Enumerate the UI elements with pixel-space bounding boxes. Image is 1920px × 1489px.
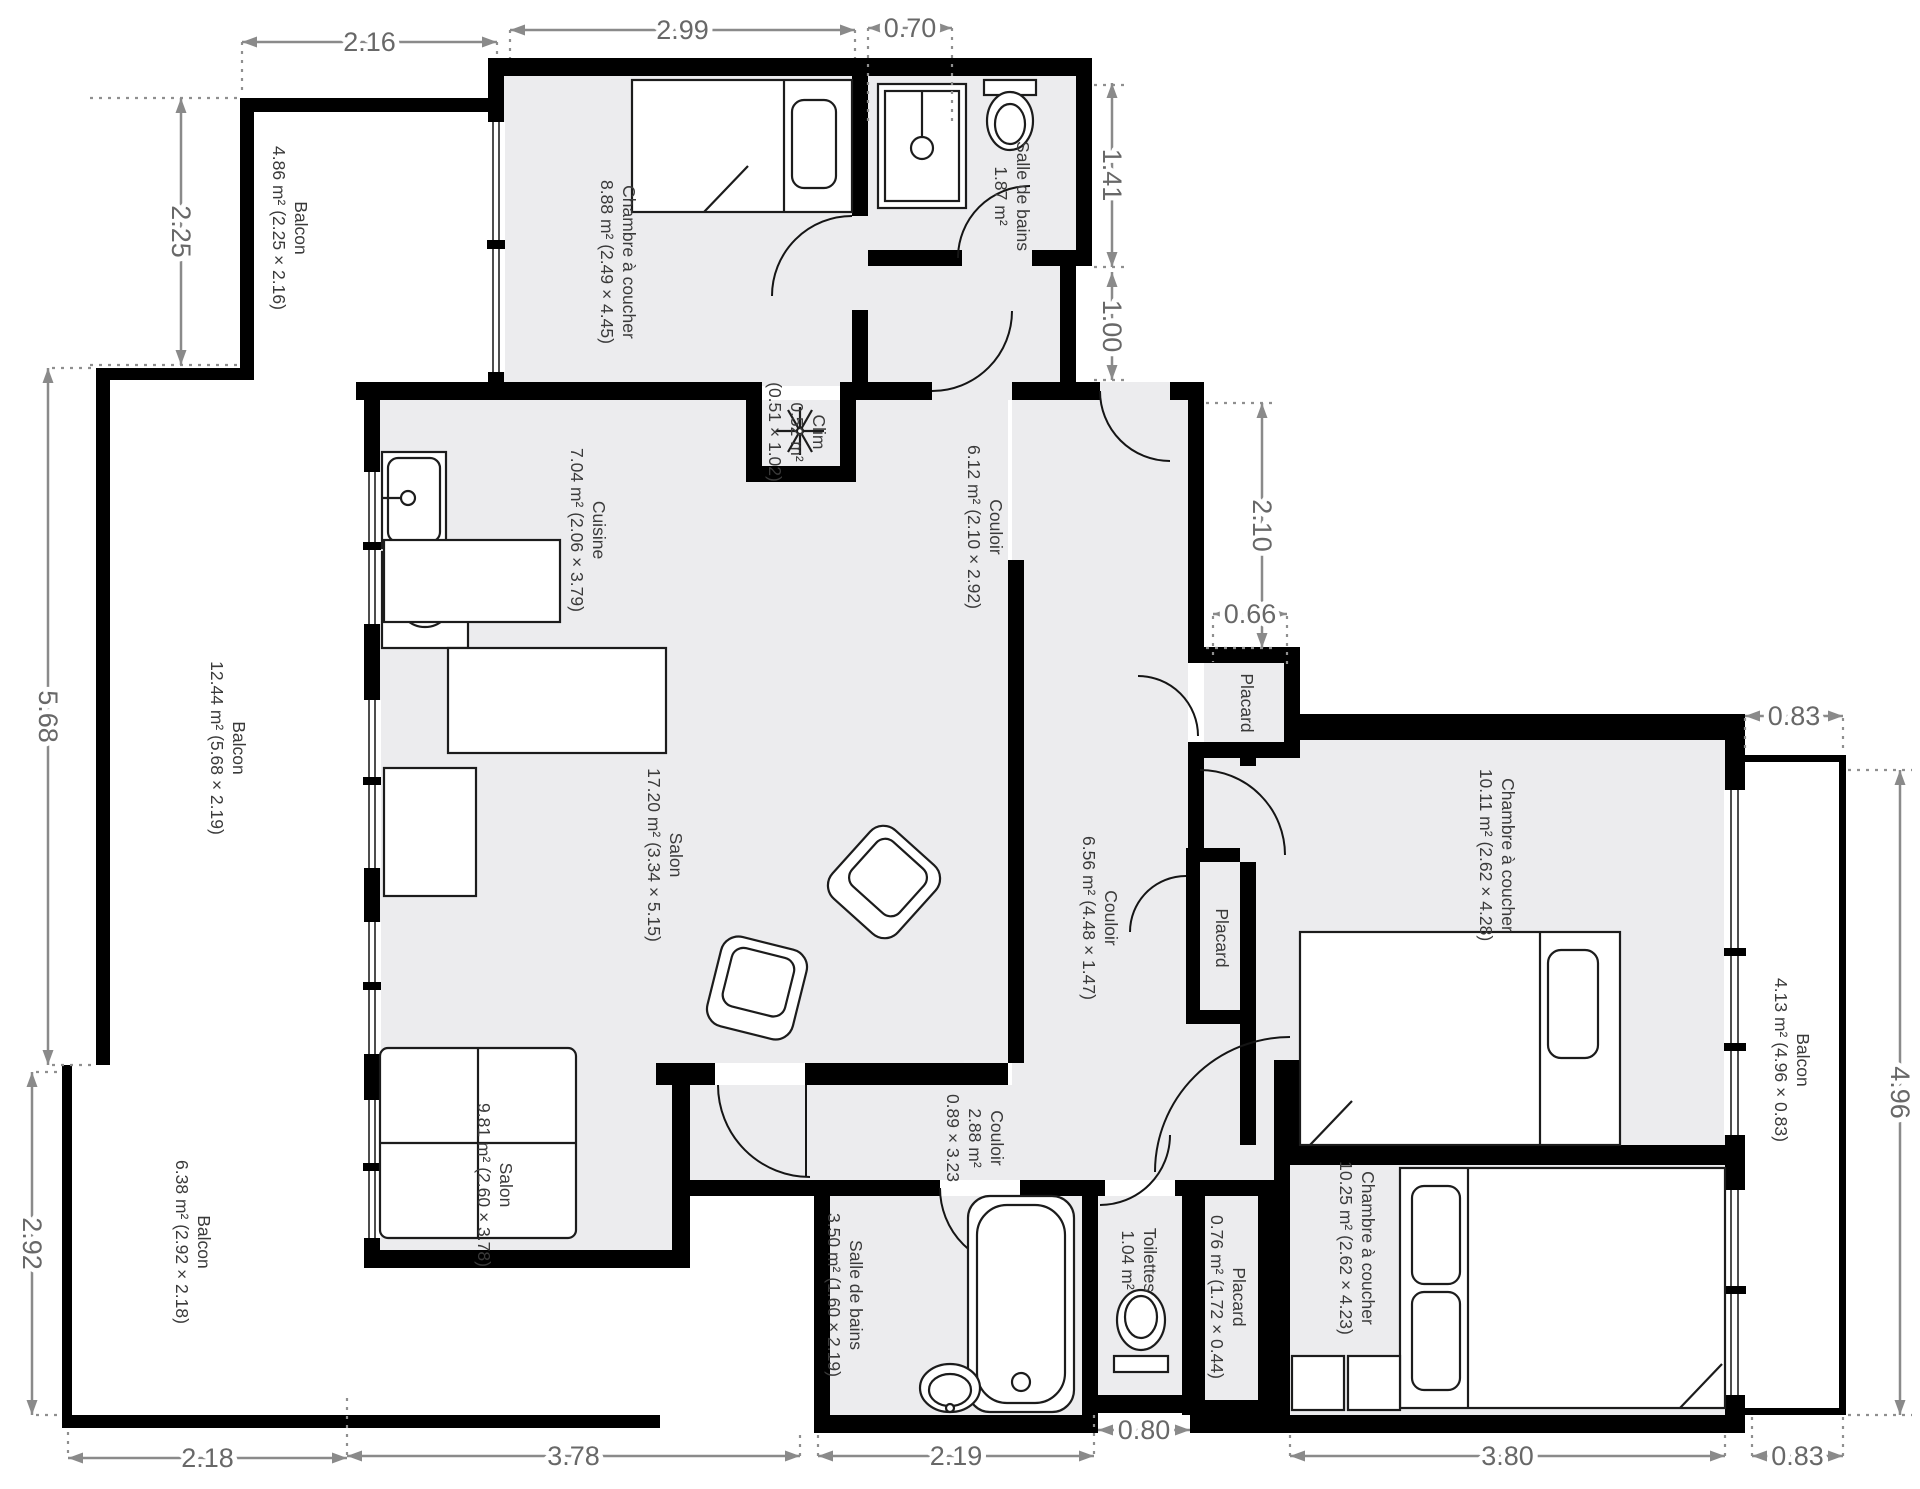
svg-text:4.96: 4.96 (1885, 1066, 1915, 1119)
svg-text:2.16: 2.16 (343, 27, 396, 57)
dimension-0.66: 0.66 (1213, 599, 1287, 629)
room-label-balcon-gauche: Balcon12.44 m² (5.68 × 2.19) (207, 661, 249, 835)
dimension-0.83: 0.83 (1745, 701, 1843, 731)
floor-plan-drawing: Balcon4.86 m² (2.25 × 2.16)Chambre à cou… (0, 0, 1920, 1489)
svg-text:Balcon4.86 m² (2.25 × 2.16): Balcon4.86 m² (2.25 × 2.16) (269, 146, 311, 310)
toilet-icon (1114, 1290, 1168, 1372)
svg-text:Balcon6.38 m² (2.92 × 2.18): Balcon6.38 m² (2.92 × 2.18) (172, 1160, 214, 1324)
counter-icon (384, 540, 560, 622)
window-icon (363, 472, 381, 624)
svg-text:2.92: 2.92 (17, 1217, 47, 1270)
svg-text:Balcon12.44 m² (5.68 × 2.19): Balcon12.44 m² (5.68 × 2.19) (207, 661, 249, 835)
dimension-3.78: 3.78 (347, 1441, 800, 1471)
svg-text:0.83: 0.83 (1768, 701, 1821, 731)
bathroom-sink-icon (920, 1364, 980, 1412)
room-label-placard-milieu: Placard (1212, 908, 1232, 967)
dimension-2.19: 2.19 (818, 1441, 1094, 1471)
dimension-0.83: 0.83 (1752, 1441, 1843, 1471)
dimension-0.80: 0.80 (1098, 1415, 1190, 1445)
single-bed-icon (632, 80, 852, 212)
dimension-1.41: 1.41 (1097, 83, 1127, 267)
svg-text:Placard: Placard (1237, 673, 1257, 732)
dimension-5.68: 5.68 (33, 368, 63, 1065)
svg-text:2.19: 2.19 (930, 1441, 983, 1471)
svg-text:2.99: 2.99 (656, 15, 709, 45)
svg-text:2.10: 2.10 (1247, 499, 1277, 552)
room-label-balcon-haut-gauche: Balcon4.86 m² (2.25 × 2.16) (269, 146, 311, 310)
window-icon (363, 700, 381, 868)
svg-text:2.18: 2.18 (181, 1443, 234, 1473)
window-icon (363, 922, 381, 1054)
single-bed-icon (1300, 932, 1620, 1145)
floor-plan-page: Balcon4.86 m² (2.25 × 2.16)Chambre à cou… (0, 0, 1920, 1489)
room-label-balcon-bas: Balcon6.38 m² (2.92 × 2.18) (172, 1160, 214, 1324)
bathtub-icon (968, 1196, 1074, 1412)
svg-text:Placard: Placard (1212, 908, 1232, 967)
window-icon (1724, 790, 1746, 1135)
dimension-2.16: 2.16 (242, 27, 497, 57)
svg-text:Balcon4.13 m² (4.96 × 0.83): Balcon4.13 m² (4.96 × 0.83) (1771, 978, 1813, 1142)
dimension-2.92: 2.92 (17, 1072, 47, 1415)
svg-text:3.78: 3.78 (547, 1441, 600, 1471)
dimension-2.99: 2.99 (510, 15, 855, 45)
svg-text:0.66: 0.66 (1224, 599, 1277, 629)
kitchen-sink-icon (382, 452, 446, 548)
svg-text:1.00: 1.00 (1097, 300, 1127, 353)
dimension-3.80: 3.80 (1290, 1441, 1725, 1471)
window-icon (1724, 1190, 1746, 1395)
svg-text:0.70: 0.70 (884, 13, 937, 43)
dimension-0.70: 0.70 (868, 13, 952, 43)
dimension-2.25: 2.25 (166, 98, 196, 365)
svg-text:0.80: 0.80 (1118, 1415, 1171, 1445)
svg-text:2.25: 2.25 (166, 205, 196, 258)
room-label-placard-haut: Placard (1237, 673, 1257, 732)
svg-text:3.80: 3.80 (1481, 1441, 1534, 1471)
svg-text:0.83: 0.83 (1771, 1441, 1824, 1471)
window-icon (363, 1100, 381, 1238)
dimension-1.00: 1.00 (1097, 272, 1127, 380)
table-icon (448, 648, 666, 753)
window-icon (487, 122, 505, 372)
dimension-2.18: 2.18 (68, 1443, 347, 1473)
double-bed-icon (1400, 1168, 1725, 1408)
side-table-icon (384, 768, 476, 896)
dimension-4.96: 4.96 (1885, 770, 1915, 1415)
svg-text:1.41: 1.41 (1097, 149, 1127, 202)
toilet-icon (984, 80, 1036, 150)
room-label-balcon-droit: Balcon4.13 m² (4.96 × 0.83) (1771, 978, 1813, 1142)
svg-text:5.68: 5.68 (33, 690, 63, 743)
